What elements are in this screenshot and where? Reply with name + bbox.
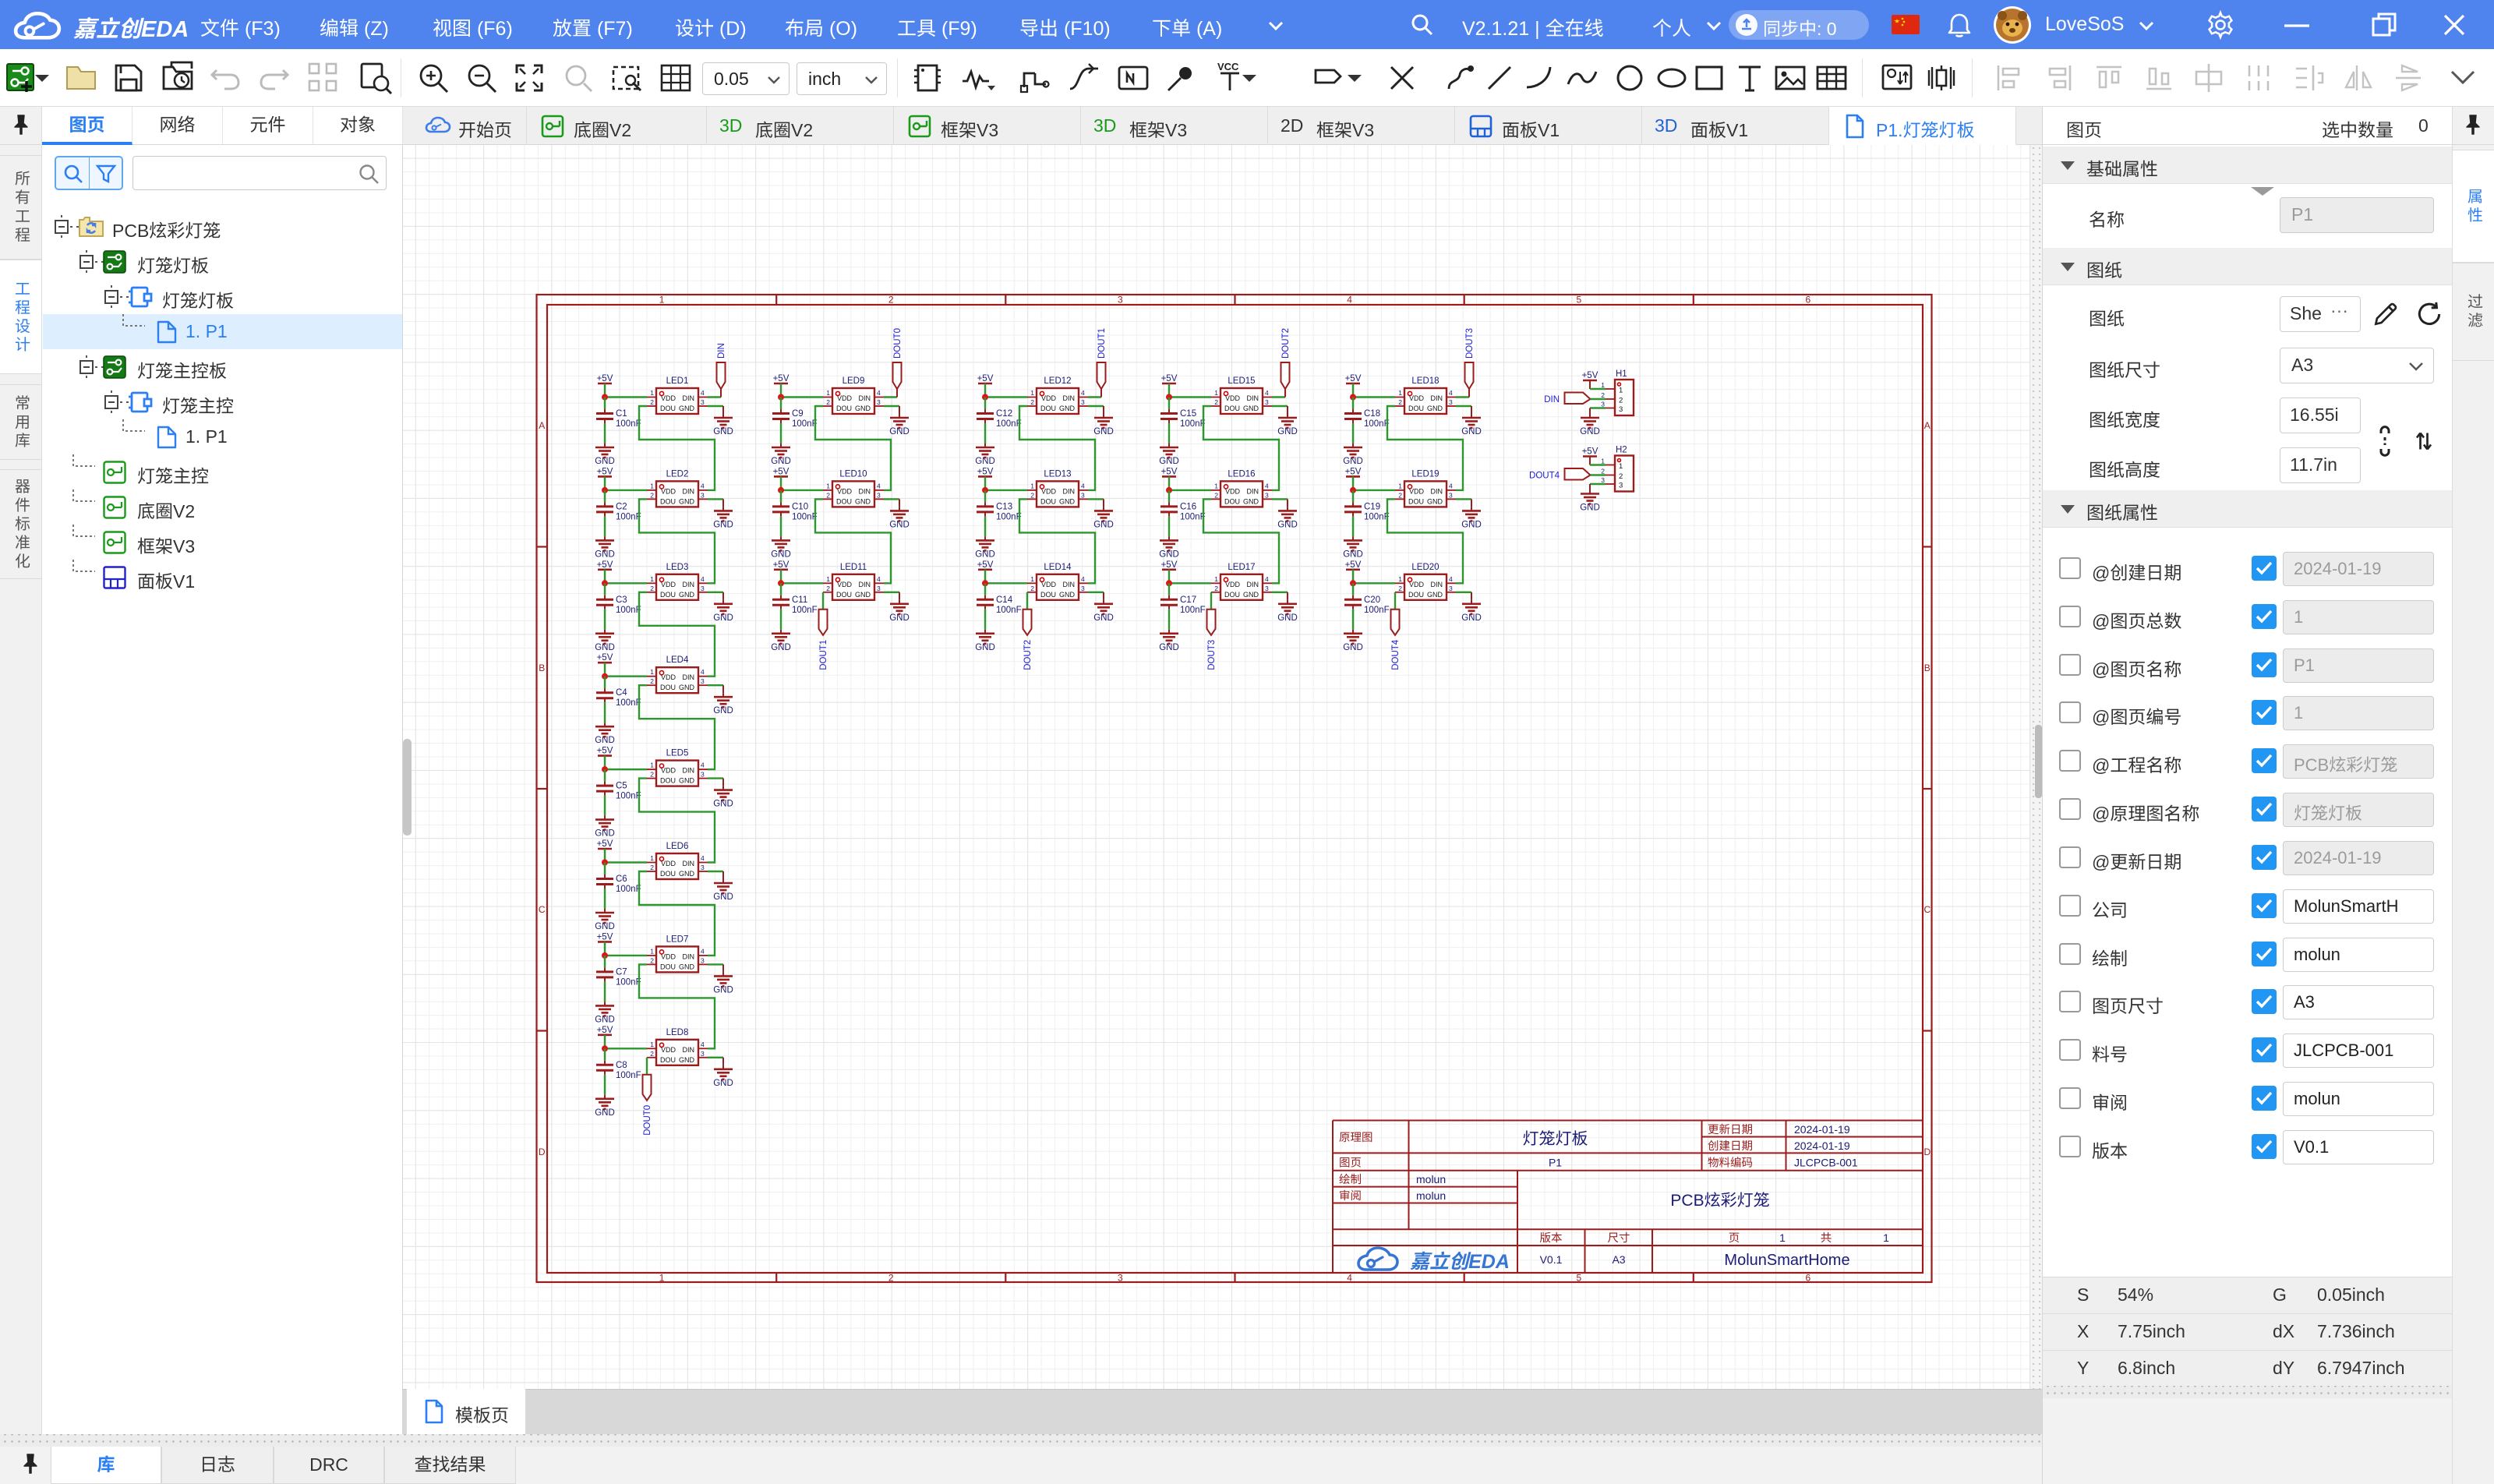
svg-text:D: D (539, 1147, 546, 1157)
svg-text:+5V: +5V (773, 467, 790, 476)
svg-text:GND: GND (1093, 520, 1114, 529)
svg-text:+5V: +5V (773, 560, 790, 570)
svg-text:C14: C14 (996, 595, 1013, 605)
svg-text:2: 2 (826, 491, 830, 499)
svg-text:DOU: DOU (1224, 591, 1240, 599)
svg-text:GND: GND (1580, 503, 1600, 513)
svg-text:3: 3 (1265, 491, 1269, 499)
svg-text:100nF: 100nF (616, 1071, 641, 1080)
svg-text:2: 2 (1214, 585, 1218, 592)
svg-text:2: 2 (1030, 398, 1034, 406)
svg-text:LED18: LED18 (1411, 376, 1439, 386)
svg-text:DOU: DOU (660, 591, 676, 599)
svg-text:DOU: DOU (836, 405, 852, 412)
svg-text:GND: GND (771, 643, 791, 652)
svg-text:P1: P1 (1549, 1157, 1562, 1169)
svg-text:100nF: 100nF (616, 792, 641, 801)
svg-text:H2: H2 (1616, 446, 1627, 455)
svg-text:2: 2 (888, 295, 894, 306)
svg-text:3: 3 (701, 864, 705, 871)
svg-text:2: 2 (826, 398, 830, 406)
svg-text:+5V: +5V (597, 839, 613, 849)
svg-text:2: 2 (650, 491, 654, 499)
svg-text:VDD: VDD (837, 394, 853, 402)
svg-text:5: 5 (1576, 295, 1581, 306)
svg-text:100nF: 100nF (996, 606, 1022, 615)
svg-text:4: 4 (701, 947, 705, 955)
svg-text:DOUT2: DOUT2 (1023, 640, 1033, 670)
svg-text:6: 6 (1806, 295, 1811, 306)
svg-text:GND: GND (595, 549, 615, 559)
svg-text:LED7: LED7 (666, 935, 689, 944)
svg-text:图页: 图页 (1339, 1157, 1362, 1170)
svg-text:DOU: DOU (660, 963, 676, 970)
svg-text:GND: GND (713, 800, 733, 809)
svg-text:1: 1 (826, 575, 830, 583)
svg-text:DOUT4: DOUT4 (1391, 639, 1401, 670)
svg-text:4: 4 (877, 482, 881, 489)
svg-text:100nF: 100nF (616, 606, 641, 615)
svg-text:GND: GND (1277, 520, 1298, 529)
svg-text:GND: GND (1059, 405, 1076, 412)
svg-text:1: 1 (1030, 575, 1034, 583)
svg-text:1: 1 (826, 389, 830, 397)
svg-text:C6: C6 (616, 874, 627, 884)
svg-text:GND: GND (1093, 427, 1114, 436)
svg-text:GND: GND (1243, 497, 1259, 505)
svg-text:V0.1: V0.1 (1540, 1253, 1563, 1266)
svg-text:LED17: LED17 (1228, 563, 1255, 572)
svg-text:2: 2 (1214, 398, 1218, 406)
svg-text:100nF: 100nF (616, 977, 641, 987)
svg-text:DIN: DIN (859, 394, 871, 402)
svg-text:GND: GND (679, 405, 695, 412)
svg-text:版本: 版本 (1540, 1231, 1563, 1245)
svg-text:DOUT3: DOUT3 (1465, 328, 1475, 359)
svg-text:DIN: DIN (1063, 394, 1076, 402)
svg-text:C13: C13 (996, 502, 1012, 511)
svg-text:100nF: 100nF (1180, 419, 1206, 429)
svg-text:GND: GND (889, 613, 910, 623)
svg-text:+5V: +5V (1161, 560, 1178, 570)
svg-text:4: 4 (1081, 482, 1085, 489)
svg-text:molun: molun (1416, 1173, 1446, 1185)
svg-text:+5V: +5V (597, 560, 613, 570)
svg-text:100nF: 100nF (1364, 606, 1390, 615)
svg-text:2: 2 (1601, 468, 1605, 475)
svg-text:3: 3 (1118, 295, 1123, 306)
svg-text:DOU: DOU (1040, 405, 1056, 412)
svg-text:VDD: VDD (1409, 581, 1425, 588)
svg-text:LED9: LED9 (843, 376, 865, 386)
svg-text:GND: GND (595, 457, 615, 466)
svg-text:LED16: LED16 (1228, 469, 1255, 479)
svg-text:VDD: VDD (1225, 487, 1241, 495)
svg-text:更新日期: 更新日期 (1708, 1123, 1753, 1136)
svg-text:4: 4 (1081, 575, 1085, 583)
svg-text:4: 4 (701, 389, 705, 397)
svg-text:共: 共 (1821, 1231, 1832, 1245)
svg-text:A3: A3 (1612, 1253, 1625, 1266)
svg-text:VDD: VDD (1041, 581, 1057, 588)
svg-text:+5V: +5V (977, 467, 994, 476)
svg-text:DOU: DOU (1224, 405, 1240, 412)
svg-text:1: 1 (1214, 482, 1218, 489)
svg-text:2: 2 (1619, 397, 1623, 405)
svg-text:3: 3 (1619, 482, 1623, 490)
svg-text:100nF: 100nF (1180, 606, 1206, 615)
svg-text:VDD: VDD (837, 581, 853, 588)
svg-text:2: 2 (1398, 585, 1402, 592)
svg-text:DOU: DOU (1224, 497, 1240, 505)
svg-text:1: 1 (1779, 1231, 1786, 1244)
svg-text:GND: GND (595, 1108, 615, 1118)
svg-text:1: 1 (650, 1041, 654, 1048)
svg-text:DIN: DIN (1247, 487, 1259, 495)
svg-text:GND: GND (1277, 427, 1298, 436)
svg-text:LED6: LED6 (666, 842, 689, 851)
svg-text:LED2: LED2 (666, 469, 689, 479)
svg-text:GND: GND (595, 829, 615, 839)
svg-text:GND: GND (1093, 613, 1114, 623)
svg-text:页: 页 (1729, 1232, 1740, 1245)
svg-text:GND: GND (679, 870, 695, 878)
svg-text:GND: GND (595, 1015, 615, 1024)
svg-text:LED13: LED13 (1044, 469, 1071, 479)
svg-text:+5V: +5V (977, 374, 994, 383)
svg-text:3: 3 (1449, 585, 1453, 592)
svg-text:1: 1 (1214, 575, 1218, 583)
svg-text:100nF: 100nF (1180, 512, 1206, 521)
svg-text:4: 4 (1347, 295, 1352, 306)
svg-text:VDD: VDD (1409, 487, 1425, 495)
svg-text:DOUT3: DOUT3 (1207, 640, 1217, 670)
svg-text:VDD: VDD (1041, 394, 1057, 402)
svg-text:1: 1 (1601, 458, 1605, 465)
svg-text:1: 1 (650, 575, 654, 583)
svg-text:嘉立创EDA: 嘉立创EDA (1410, 1251, 1510, 1273)
svg-text:C1: C1 (616, 409, 627, 419)
svg-text:3: 3 (877, 398, 881, 406)
svg-text:2: 2 (1398, 491, 1402, 499)
svg-text:GND: GND (1243, 405, 1259, 412)
svg-text:1: 1 (1214, 389, 1218, 397)
svg-text:+5V: +5V (597, 747, 613, 756)
svg-text:H1: H1 (1616, 369, 1627, 379)
svg-text:3: 3 (701, 956, 705, 964)
svg-text:DOUT1: DOUT1 (819, 640, 828, 670)
svg-text:3: 3 (1619, 405, 1623, 414)
svg-text:VCC: VCC (1217, 61, 1239, 72)
svg-text:原理图: 原理图 (1339, 1132, 1373, 1144)
svg-text:3: 3 (1118, 1273, 1123, 1284)
svg-text:2: 2 (826, 585, 830, 592)
svg-text:1: 1 (659, 295, 665, 306)
svg-text:4: 4 (1081, 389, 1085, 397)
svg-text:C12: C12 (996, 409, 1012, 419)
svg-text:+5V: +5V (1345, 374, 1362, 383)
svg-text:DIN: DIN (859, 581, 871, 588)
svg-text:DIN: DIN (717, 343, 726, 359)
svg-text:VDD: VDD (1225, 394, 1241, 402)
svg-text:DIN: DIN (1431, 394, 1443, 402)
svg-text:LED10: LED10 (839, 469, 867, 479)
svg-text:C10: C10 (792, 502, 808, 511)
svg-text:DIN: DIN (683, 673, 695, 681)
svg-text:2: 2 (650, 585, 654, 592)
svg-text:尺寸: 尺寸 (1608, 1231, 1630, 1245)
svg-text:2: 2 (1214, 491, 1218, 499)
svg-text:GND: GND (975, 457, 995, 466)
svg-text:GND: GND (679, 684, 695, 691)
svg-text:GND: GND (1343, 549, 1363, 559)
svg-text:3: 3 (701, 585, 705, 592)
svg-text:4: 4 (701, 575, 705, 583)
svg-text:DIN: DIN (1247, 581, 1259, 588)
svg-text:2024-01-19: 2024-01-19 (1794, 1123, 1850, 1136)
svg-text:3: 3 (701, 1050, 705, 1058)
svg-text:100nF: 100nF (616, 698, 641, 708)
svg-text:+5V: +5V (977, 560, 994, 570)
svg-text:DOUT2: DOUT2 (1281, 328, 1291, 359)
svg-text:GND: GND (1159, 457, 1179, 466)
svg-text:1: 1 (1398, 482, 1402, 489)
svg-text:GND: GND (1461, 520, 1482, 529)
svg-text:LED19: LED19 (1411, 469, 1439, 479)
svg-text:3: 3 (701, 398, 705, 406)
svg-text:DOU: DOU (1408, 591, 1424, 599)
svg-text:绘制: 绘制 (1339, 1173, 1362, 1186)
svg-text:A: A (539, 420, 545, 431)
svg-text:3: 3 (701, 771, 705, 779)
svg-text:+5V: +5V (597, 1026, 613, 1035)
svg-text:1: 1 (650, 761, 654, 769)
svg-text:+5V: +5V (597, 374, 613, 383)
svg-text:GND: GND (1159, 549, 1179, 559)
svg-text:DIN: DIN (683, 952, 695, 960)
svg-text:GND: GND (975, 643, 995, 652)
svg-text:C: C (539, 904, 546, 915)
svg-text:+5V: +5V (1345, 467, 1362, 476)
svg-text:100nF: 100nF (616, 885, 641, 894)
svg-text:VDD: VDD (837, 487, 853, 495)
svg-text:VDD: VDD (661, 1046, 676, 1054)
svg-text:LED11: LED11 (840, 563, 867, 572)
svg-text:GND: GND (855, 405, 871, 412)
svg-text:C11: C11 (792, 595, 807, 605)
svg-text:1: 1 (1883, 1231, 1889, 1244)
svg-text:4: 4 (1265, 389, 1269, 397)
svg-text:3: 3 (1449, 491, 1453, 499)
svg-text:100nF: 100nF (792, 419, 818, 429)
svg-text:DOU: DOU (660, 405, 676, 412)
svg-text:+5V: +5V (773, 374, 790, 383)
svg-text:2: 2 (650, 1050, 654, 1058)
svg-text:VDD: VDD (661, 581, 676, 588)
svg-text:3: 3 (701, 677, 705, 685)
svg-text:GND: GND (1159, 643, 1179, 652)
svg-text:1: 1 (650, 389, 654, 397)
svg-text:1: 1 (826, 482, 830, 489)
svg-text:GND: GND (713, 613, 733, 623)
svg-text:GND: GND (1343, 643, 1363, 652)
svg-text:C3: C3 (616, 595, 627, 605)
svg-text:GND: GND (1427, 405, 1443, 412)
svg-text:GND: GND (713, 892, 733, 902)
svg-text:GND: GND (1277, 613, 1298, 623)
svg-text:DOU: DOU (1040, 497, 1056, 505)
svg-text:DOU: DOU (1040, 591, 1056, 599)
svg-text:GND: GND (679, 963, 695, 970)
svg-text:4: 4 (701, 1041, 705, 1048)
svg-text:DOUT1: DOUT1 (1097, 328, 1107, 359)
svg-text:C2: C2 (616, 502, 627, 511)
svg-text:4: 4 (1449, 482, 1453, 489)
svg-text:1: 1 (650, 668, 654, 676)
svg-text:VDD: VDD (661, 487, 676, 495)
svg-text:2: 2 (650, 677, 654, 685)
svg-text:2: 2 (1398, 398, 1402, 406)
svg-text:DOU: DOU (1408, 405, 1424, 412)
svg-text:DOUT0: DOUT0 (893, 328, 903, 359)
svg-text:VDD: VDD (661, 952, 676, 960)
svg-text:GND: GND (713, 985, 733, 995)
svg-text:3: 3 (1081, 398, 1085, 406)
svg-text:DOU: DOU (660, 1056, 676, 1064)
svg-text:+5V: +5V (597, 932, 613, 942)
svg-text:C16: C16 (1180, 502, 1196, 511)
svg-text:GND: GND (1059, 497, 1076, 505)
svg-text:1: 1 (1619, 462, 1623, 471)
svg-text:C8: C8 (616, 1061, 627, 1070)
svg-text:C7: C7 (616, 967, 627, 977)
svg-text:GND: GND (855, 591, 871, 599)
svg-text:100nF: 100nF (616, 419, 641, 429)
svg-text:100nF: 100nF (1364, 419, 1390, 429)
svg-text:物料编码: 物料编码 (1708, 1157, 1753, 1170)
svg-text:VDD: VDD (661, 767, 676, 775)
svg-text:GND: GND (679, 591, 695, 599)
svg-text:3: 3 (877, 585, 881, 592)
svg-text:DIN: DIN (1431, 581, 1443, 588)
svg-text:2: 2 (650, 864, 654, 871)
svg-text:创建日期: 创建日期 (1708, 1139, 1753, 1153)
svg-text:4: 4 (701, 854, 705, 862)
svg-text:DIN: DIN (683, 1046, 695, 1054)
svg-text:+5V: +5V (1345, 560, 1362, 570)
svg-text:D: D (1923, 1147, 1931, 1157)
svg-text:2: 2 (650, 771, 654, 779)
svg-text:LED8: LED8 (666, 1028, 689, 1037)
svg-text:3: 3 (701, 491, 705, 499)
svg-text:3: 3 (1081, 585, 1085, 592)
svg-text:4: 4 (877, 389, 881, 397)
svg-text:LED3: LED3 (666, 563, 689, 572)
svg-text:VDD: VDD (1409, 394, 1425, 402)
svg-text:灯笼灯板: 灯笼灯板 (1523, 1130, 1588, 1148)
svg-text:2: 2 (650, 398, 654, 406)
svg-text:+5V: +5V (597, 467, 613, 476)
svg-text:GND: GND (1427, 591, 1443, 599)
svg-text:DIN: DIN (683, 860, 695, 867)
svg-text:DOUT4: DOUT4 (1529, 472, 1560, 481)
svg-text:GND: GND (771, 549, 791, 559)
svg-text:GND: GND (679, 497, 695, 505)
svg-text:2024-01-19: 2024-01-19 (1794, 1139, 1850, 1152)
svg-text:2: 2 (1619, 472, 1623, 481)
svg-text:4: 4 (701, 761, 705, 769)
svg-text:3: 3 (1601, 401, 1605, 408)
svg-text:GND: GND (679, 1056, 695, 1064)
svg-text:2: 2 (650, 956, 654, 964)
svg-text:3: 3 (877, 491, 881, 499)
svg-text:LED1: LED1 (666, 376, 689, 386)
svg-text:C: C (1923, 904, 1931, 915)
svg-text:GND: GND (771, 457, 791, 466)
svg-text:GND: GND (713, 520, 733, 529)
svg-text:LED15: LED15 (1228, 376, 1255, 386)
svg-text:C5: C5 (616, 782, 627, 791)
svg-text:4: 4 (701, 482, 705, 489)
svg-text:DOUT0: DOUT0 (643, 1105, 652, 1136)
svg-text:C9: C9 (792, 409, 804, 419)
svg-text:LED14: LED14 (1044, 563, 1072, 572)
svg-text:+5V: +5V (1161, 467, 1178, 476)
svg-text:审阅: 审阅 (1339, 1189, 1362, 1203)
svg-text:4: 4 (701, 668, 705, 676)
svg-text:3: 3 (1265, 585, 1269, 592)
svg-text:+5V: +5V (1582, 447, 1598, 457)
svg-text:MolunSmartHome: MolunSmartHome (1724, 1252, 1849, 1269)
svg-text:B: B (1924, 662, 1931, 673)
svg-text:1: 1 (1030, 482, 1034, 489)
svg-text:VDD: VDD (661, 860, 676, 867)
svg-text:GND: GND (889, 520, 910, 529)
svg-text:1: 1 (1398, 389, 1402, 397)
svg-text:B: B (539, 662, 545, 673)
svg-text:PCB炫彩灯笼: PCB炫彩灯笼 (1670, 1192, 1769, 1210)
svg-text:GND: GND (1343, 457, 1363, 466)
svg-text:C20: C20 (1364, 595, 1380, 605)
svg-text:3: 3 (1601, 476, 1605, 484)
svg-text:GND: GND (1461, 427, 1482, 436)
svg-text:GND: GND (1461, 613, 1482, 623)
svg-text:4: 4 (1449, 575, 1453, 583)
svg-text:DIN: DIN (1247, 394, 1259, 402)
svg-text:DOU: DOU (836, 591, 852, 599)
svg-text:1: 1 (650, 947, 654, 955)
svg-text:A: A (1924, 420, 1931, 431)
svg-text:GND: GND (713, 706, 733, 715)
svg-text:DOU: DOU (660, 870, 676, 878)
svg-text:100nF: 100nF (1364, 512, 1390, 521)
svg-text:VDD: VDD (661, 673, 676, 681)
svg-text:GND: GND (595, 922, 615, 931)
svg-text:C4: C4 (616, 688, 627, 698)
svg-text:DIN: DIN (683, 581, 695, 588)
svg-text:GND: GND (595, 736, 615, 745)
svg-text:2: 2 (1030, 585, 1034, 592)
svg-text:6: 6 (1806, 1273, 1811, 1284)
svg-text:5: 5 (1576, 1273, 1581, 1284)
svg-text:LED5: LED5 (666, 749, 689, 758)
svg-text:DIN: DIN (859, 487, 871, 495)
svg-text:DIN: DIN (1544, 395, 1560, 405)
svg-text:DOU: DOU (660, 497, 676, 505)
svg-text:C19: C19 (1364, 502, 1380, 511)
svg-text:VDD: VDD (661, 394, 676, 402)
svg-text:4: 4 (1265, 575, 1269, 583)
